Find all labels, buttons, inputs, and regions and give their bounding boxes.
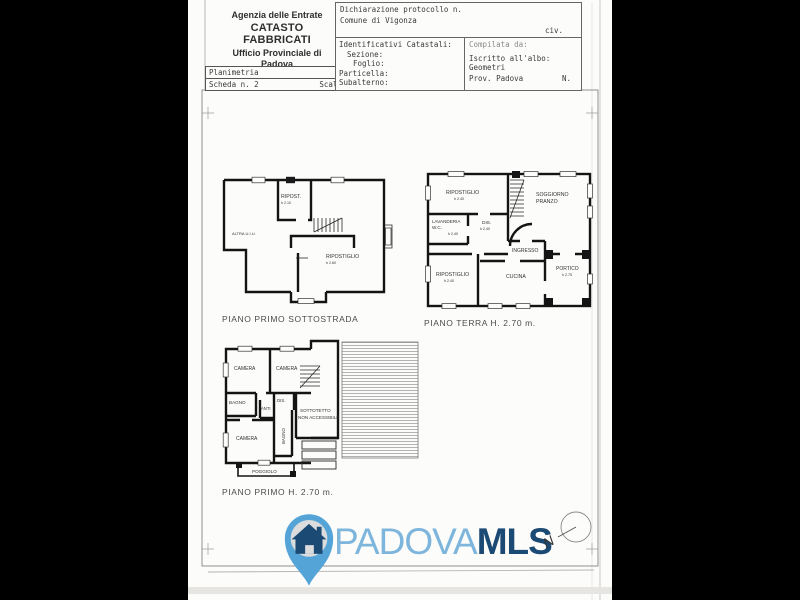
balcony-slats [302, 441, 336, 469]
albo-label: Iscritto all'albo: [469, 54, 577, 64]
room-label: CUCINA [506, 274, 526, 280]
map-pin-house-icon [280, 510, 338, 588]
roof-hatch-area [342, 342, 418, 458]
window-marks [223, 346, 294, 465]
prov-label: Prov. Padova [469, 74, 523, 84]
caption-sottostrada: PIANO PRIMO SOTTOSTRADA [222, 314, 358, 324]
room-label: SOTTOTETTO [300, 408, 331, 413]
civ-label: civ. [545, 26, 563, 35]
window-marks [252, 177, 391, 304]
field-sezione: Sezione: [339, 50, 461, 60]
stairs-icon [300, 366, 320, 388]
room-label: RIPOSTIGLIO [326, 254, 359, 260]
field-subalterno: Subalterno: [339, 78, 461, 88]
room-label: BAGNO [281, 428, 286, 444]
room-label: POGGIOLO [252, 469, 277, 474]
scheda-label: Scheda n. 2 [209, 80, 259, 89]
room-height: h 2.40 [454, 197, 464, 201]
room-height: h 2.40 [444, 279, 454, 283]
screenshot-root: { "header": { "agency": { "line1": "Agen… [0, 0, 800, 600]
room-label: ALTRA U.I.U. [232, 231, 256, 236]
floorplan-terra: RIPOSTIGLIO h 2.40 SOGGIORNO PRANZO LAVA… [420, 166, 600, 318]
room-height: h 2.40 [480, 227, 490, 231]
room-label: DIS. [277, 398, 286, 403]
catastali-section: Identificativi Catastali: Sezione: Fogli… [336, 38, 465, 90]
agency-line3: Ufficio Provinciale di [216, 48, 338, 58]
room-label: PORTICO [556, 266, 579, 272]
room-label: RIPOSTIGLIO [436, 272, 469, 278]
brand-wordmark: PADOVA MLS [334, 521, 552, 563]
stairs-icon [296, 218, 392, 258]
brand-padova: PADOVA [334, 521, 477, 563]
north-compass-icon: N [536, 503, 598, 555]
albo-value: Geometri [469, 63, 577, 73]
caption-primo: PIANO PRIMO H. 2.70 m. [222, 487, 333, 497]
agency-line1: Agenzia delle Entrate [216, 10, 338, 20]
room-label: NON ACCESSIBILE [298, 415, 339, 420]
document-page: Agenzia delle Entrate CATASTO FABBRICATI… [188, 0, 612, 600]
caption-terra: PIANO TERRA H. 2.70 m. [424, 318, 536, 328]
room-height: h 2.10 [281, 201, 291, 205]
floorplan-sottostrada: RIPOST. h 2.10 ALTRA U.I.U. RIPOSTIGLIO … [216, 170, 400, 312]
agency-line2: CATASTO FABBRICATI [216, 22, 338, 46]
room-height: h 2.40 [448, 232, 458, 236]
bottom-strip [188, 587, 612, 594]
room-label: LAVANDERIA [432, 219, 461, 224]
declaration-box: Dichiarazione protocollo n. Comune di Vi… [335, 2, 582, 91]
room-label: CAMERA [276, 366, 298, 372]
room-label: CAMERA [236, 436, 258, 442]
compilata-label: Compilata da: [469, 40, 577, 50]
compass-letter: N [540, 532, 558, 551]
room-label: RIPOST. [281, 194, 301, 200]
compiler-section: Compilata da: Iscritto all'albo: Geometr… [465, 38, 581, 90]
room-label: PRANZO [536, 199, 558, 205]
agency-header: Agenzia delle Entrate CATASTO FABBRICATI… [216, 10, 338, 69]
room-label: SOGGIORNO [536, 192, 569, 198]
stairs-icon [510, 180, 524, 218]
n-label: N. [562, 74, 571, 84]
field-particella: Particella: [339, 69, 461, 79]
field-foglio: Foglio: [339, 59, 461, 69]
protocol-label: Dichiarazione protocollo n. [340, 5, 462, 14]
comune-label: Comune di Vigonza [340, 16, 417, 25]
room-label: CAMERA [234, 366, 256, 372]
room-label: INGRESSO [512, 248, 539, 254]
room-label: RIPOSTIGLIO [446, 190, 479, 196]
room-label: DIS. [482, 220, 491, 226]
room-label: W.C. [432, 225, 442, 230]
room-height: h 2.60 [326, 261, 336, 265]
floorplan-primo: CAMERA CAMERA BAGNO DIS. ANTI CAMERA BAG… [216, 338, 424, 488]
room-height: h 2.75 [562, 273, 572, 277]
catastali-title: Identificativi Catastali: [339, 40, 461, 50]
room-label: BAGNO [229, 400, 246, 405]
room-label: ANTI [261, 406, 271, 411]
